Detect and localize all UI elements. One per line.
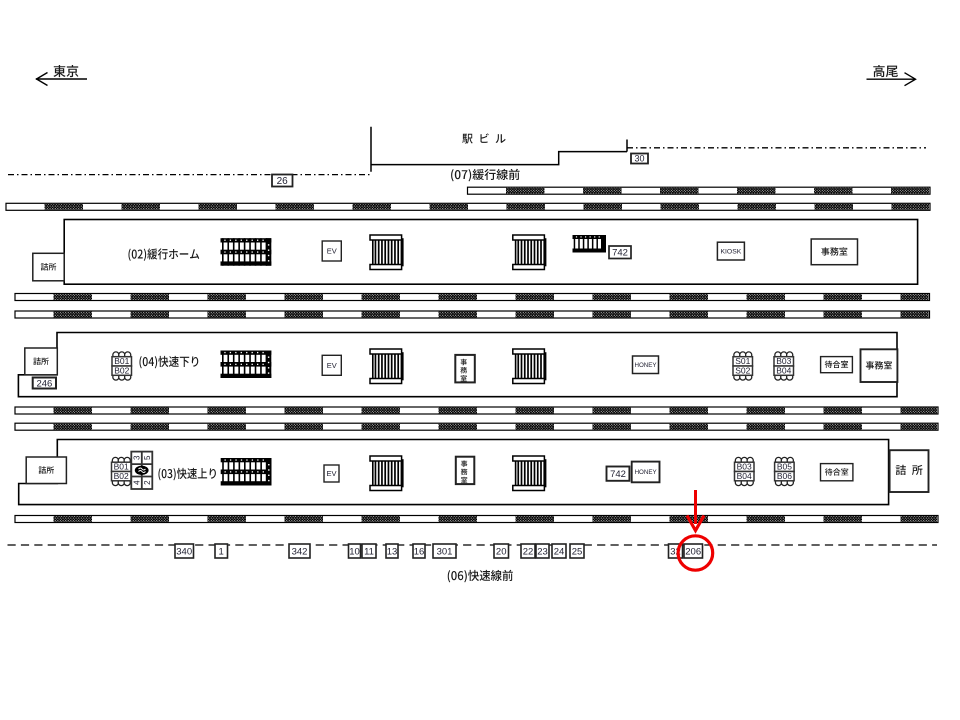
svg-text:206: 206 [685,546,701,557]
svg-text:340: 340 [176,546,192,557]
svg-text:EV: EV [326,469,336,478]
svg-text:25: 25 [572,546,583,557]
svg-text:KIOSK: KIOSK [721,249,742,256]
svg-text:26: 26 [277,176,289,187]
svg-text:10: 10 [349,546,360,557]
svg-text:EV: EV [327,361,337,370]
svg-text:30: 30 [634,154,644,164]
svg-text:22: 22 [523,546,534,557]
svg-text:342: 342 [292,546,308,557]
svg-text:23: 23 [537,546,548,557]
svg-text:B04: B04 [776,366,791,376]
svg-text:742: 742 [612,248,628,259]
svg-text:HONEY: HONEY [634,362,656,369]
svg-text:24: 24 [554,546,565,557]
svg-text:16: 16 [414,546,425,557]
svg-text:11: 11 [364,546,374,557]
svg-text:S02: S02 [735,366,750,376]
svg-text:20: 20 [496,546,507,557]
svg-text:B02: B02 [114,366,129,376]
svg-text:2: 2 [143,480,152,485]
svg-text:5: 5 [143,455,152,460]
svg-text:4: 4 [132,480,141,485]
svg-text:B04: B04 [737,471,752,481]
svg-text:HONEY: HONEY [635,469,657,476]
svg-text:B06: B06 [777,471,792,481]
svg-text:B02: B02 [114,471,129,481]
svg-text:301: 301 [437,546,453,557]
svg-text:742: 742 [610,469,626,480]
svg-text:13: 13 [387,546,398,557]
svg-text:EV: EV [327,247,337,256]
svg-text:246: 246 [36,378,52,389]
svg-text:3: 3 [132,455,141,460]
svg-text:1: 1 [219,546,224,557]
